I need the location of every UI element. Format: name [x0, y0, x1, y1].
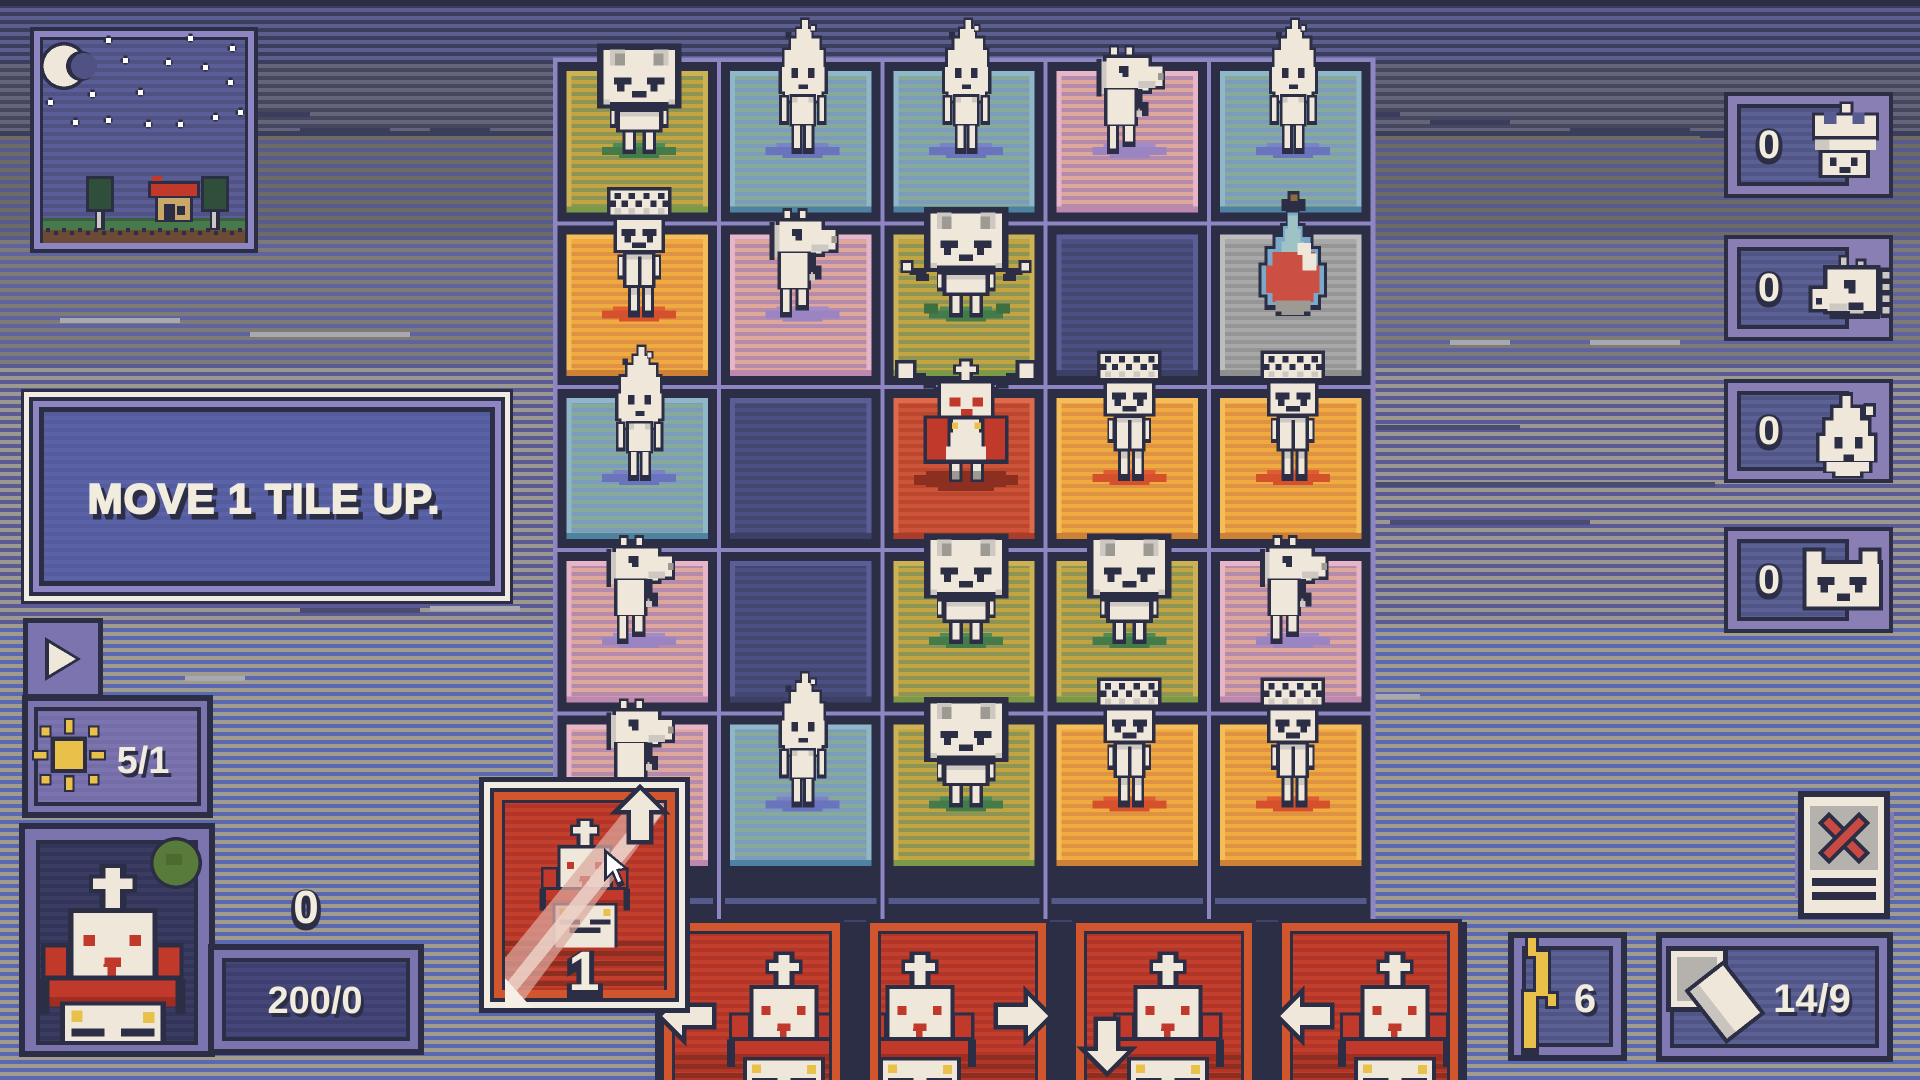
svg-text:0: 0 — [293, 881, 319, 933]
svg-text:0: 0 — [1758, 123, 1780, 167]
svg-text:MOVE 1 TILE UP.: MOVE 1 TILE UP. — [88, 475, 441, 522]
svg-text:0: 0 — [1758, 558, 1780, 602]
svg-text:14/9: 14/9 — [1773, 977, 1851, 1021]
svg-text:0: 0 — [1758, 409, 1780, 453]
svg-text:1: 1 — [568, 939, 599, 1002]
svg-text:0: 0 — [1758, 266, 1780, 310]
svg-text:5/1: 5/1 — [117, 740, 170, 782]
svg-text:6: 6 — [1574, 977, 1596, 1021]
svg-text:200/0: 200/0 — [267, 980, 362, 1022]
